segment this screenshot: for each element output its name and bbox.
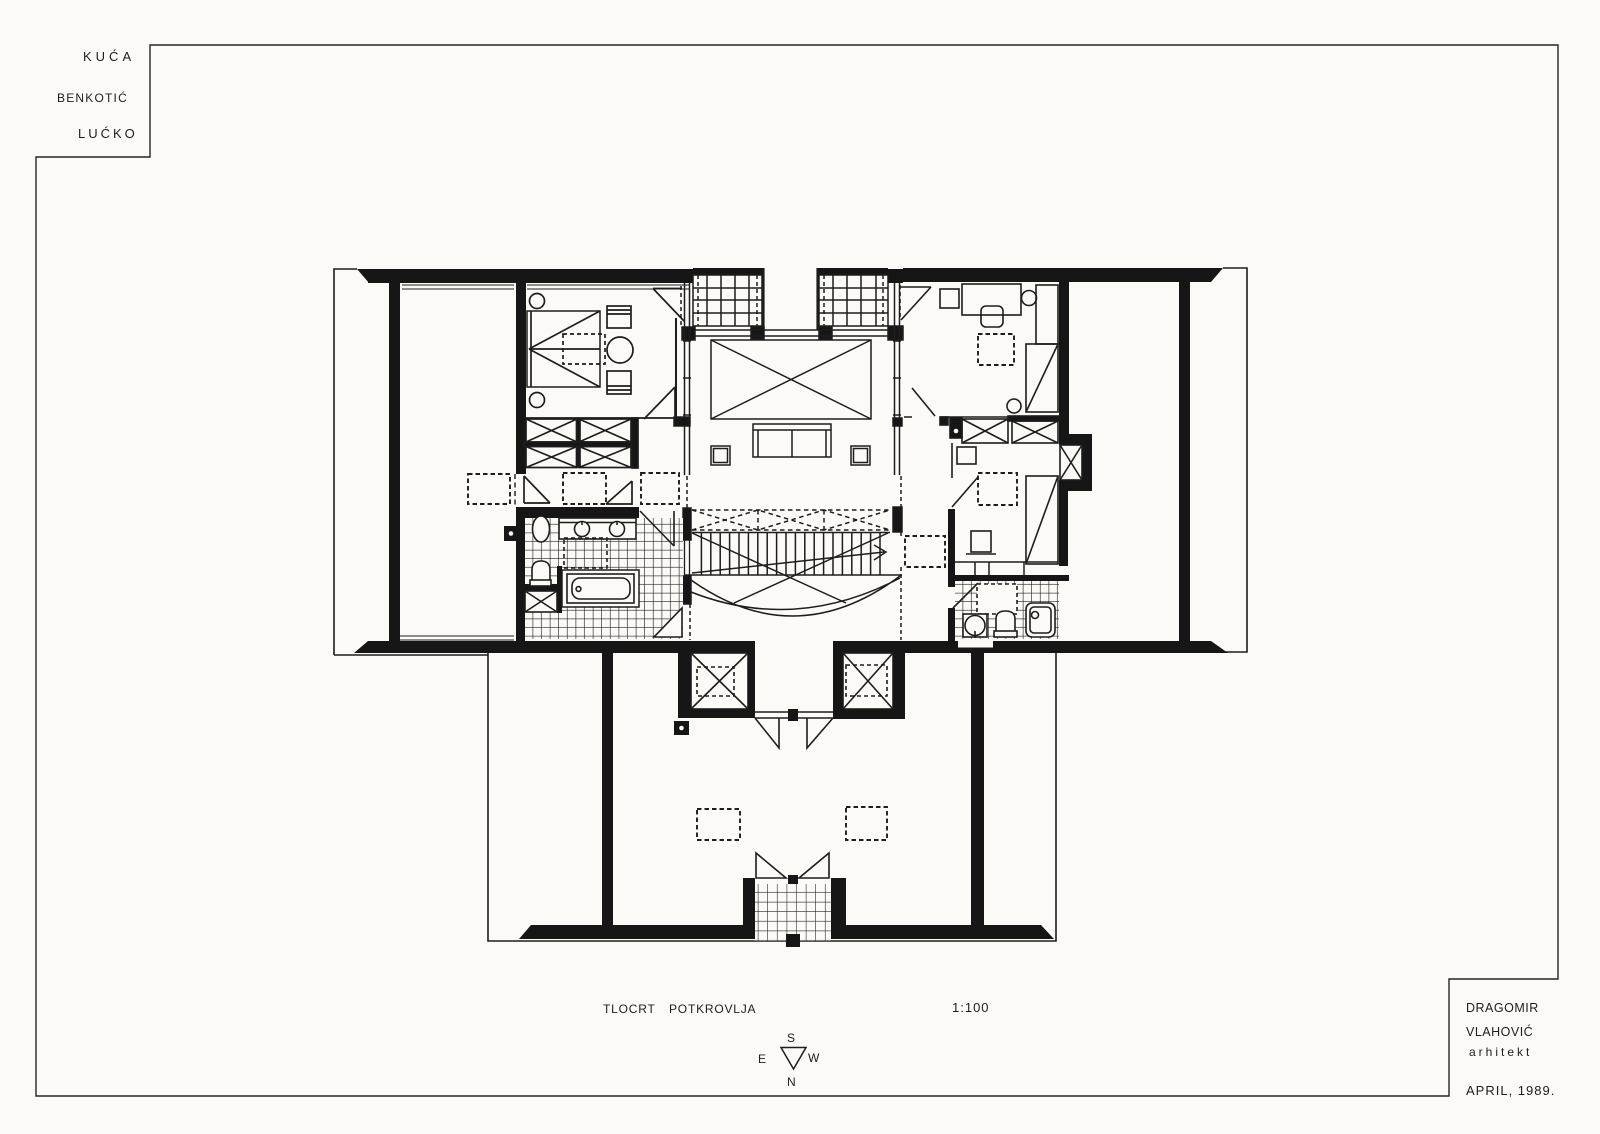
svg-text:BENKOTIĆ: BENKOTIĆ [57, 90, 128, 105]
svg-text:S: S [787, 1031, 795, 1045]
svg-text:DRAGOMIR: DRAGOMIR [1466, 1001, 1539, 1015]
svg-text:TLOCRT: TLOCRT [603, 1002, 656, 1016]
svg-text:W: W [808, 1051, 820, 1065]
svg-text:E: E [758, 1052, 766, 1066]
svg-text:VLAHOVIĆ: VLAHOVIĆ [1466, 1024, 1533, 1039]
svg-text:1:100: 1:100 [952, 1000, 990, 1015]
svg-text:arhitekt: arhitekt [1469, 1045, 1532, 1059]
svg-text:KUĆA: KUĆA [83, 49, 135, 64]
svg-text:LUĆKO: LUĆKO [78, 126, 138, 141]
svg-text:POTKROVLJA: POTKROVLJA [669, 1002, 756, 1016]
svg-text:N: N [787, 1075, 796, 1089]
svg-text:APRIL, 1989.: APRIL, 1989. [1466, 1083, 1555, 1098]
